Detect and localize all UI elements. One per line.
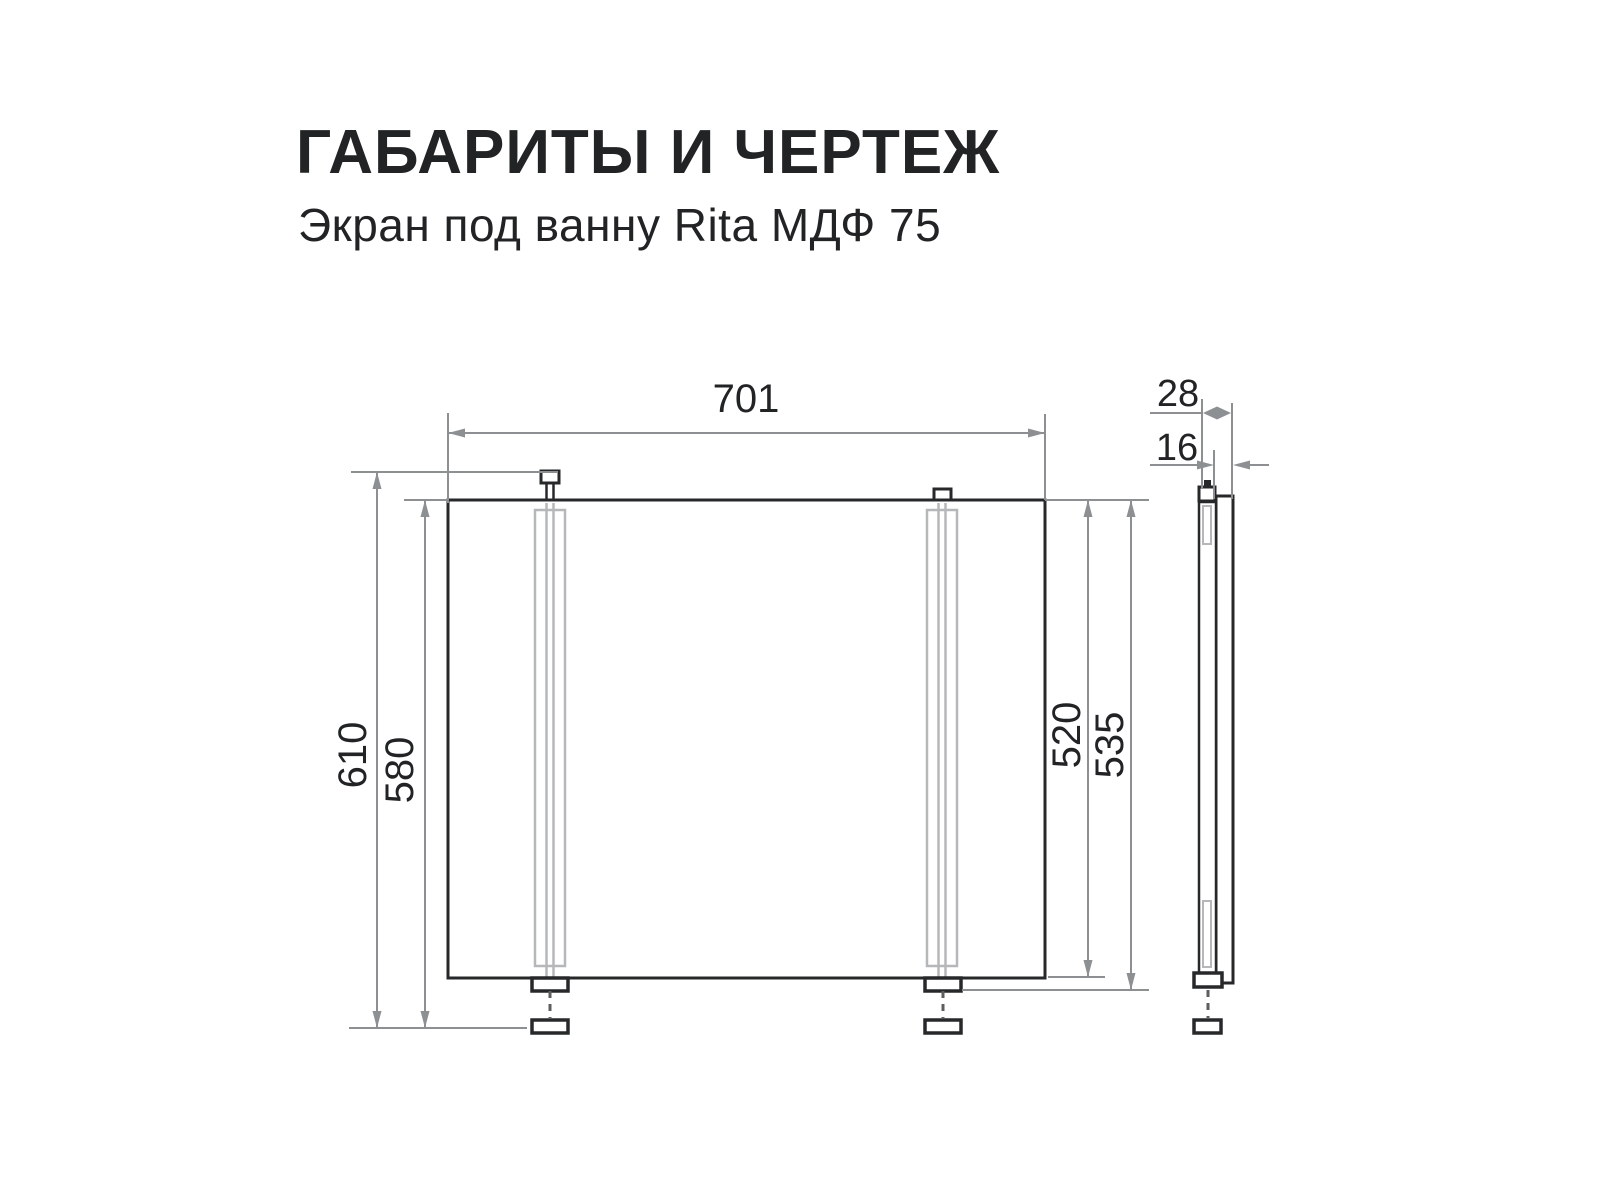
arrow-left-icon (448, 429, 465, 438)
side-view (1194, 480, 1233, 1033)
right-foot-retracted (925, 978, 961, 991)
side-rail-insert-top (1203, 506, 1211, 544)
dim-width-701: 701 (448, 377, 1045, 503)
page: { "header": { "title": "ГАБАРИТЫ И ЧЕРТЕ… (0, 0, 1600, 1200)
side-rail-insert-bottom (1203, 901, 1211, 967)
side-foot-retracted (1194, 973, 1222, 987)
dim-label-701: 701 (713, 377, 780, 421)
left-foot-extended (532, 1020, 568, 1033)
arrow-up-icon (1127, 500, 1136, 517)
dim-label-16: 16 (1156, 427, 1198, 469)
dim-label-520: 520 (1045, 702, 1089, 769)
front-panel-outline (448, 500, 1045, 978)
arrow-up-icon (421, 500, 430, 517)
arrow-right-icon (1028, 429, 1045, 438)
dim-label-610: 610 (331, 722, 375, 789)
dim-label-535: 535 (1088, 712, 1132, 779)
front-view (448, 471, 1045, 1033)
dim-height-580: 580 (378, 500, 449, 1028)
dim-label-28: 28 (1157, 373, 1199, 415)
arrow-down-icon (1127, 973, 1136, 990)
diamond-arrows-icon (1203, 407, 1231, 420)
side-top-adjuster (1199, 487, 1215, 501)
arrow-up-icon (373, 472, 382, 489)
left-foot (532, 978, 568, 1033)
side-foot-extended (1194, 1020, 1221, 1033)
left-top-adjuster (541, 471, 559, 501)
arrow-left-icon (1233, 461, 1250, 470)
arrow-down-icon (373, 1011, 382, 1028)
right-top-adjuster (934, 489, 951, 500)
arrow-down-icon (421, 1011, 430, 1028)
left-foot-retracted (532, 978, 568, 991)
right-foot-extended (925, 1020, 961, 1033)
right-foot (925, 978, 961, 1033)
arrow-down-icon (1084, 960, 1093, 977)
arrow-up-icon (1084, 500, 1093, 517)
arrow-right-icon (1197, 461, 1214, 470)
technical-drawing: 701 610 580 520 (0, 0, 1600, 1200)
side-panel-outline (1216, 496, 1233, 983)
dim-label-580: 580 (378, 737, 422, 804)
